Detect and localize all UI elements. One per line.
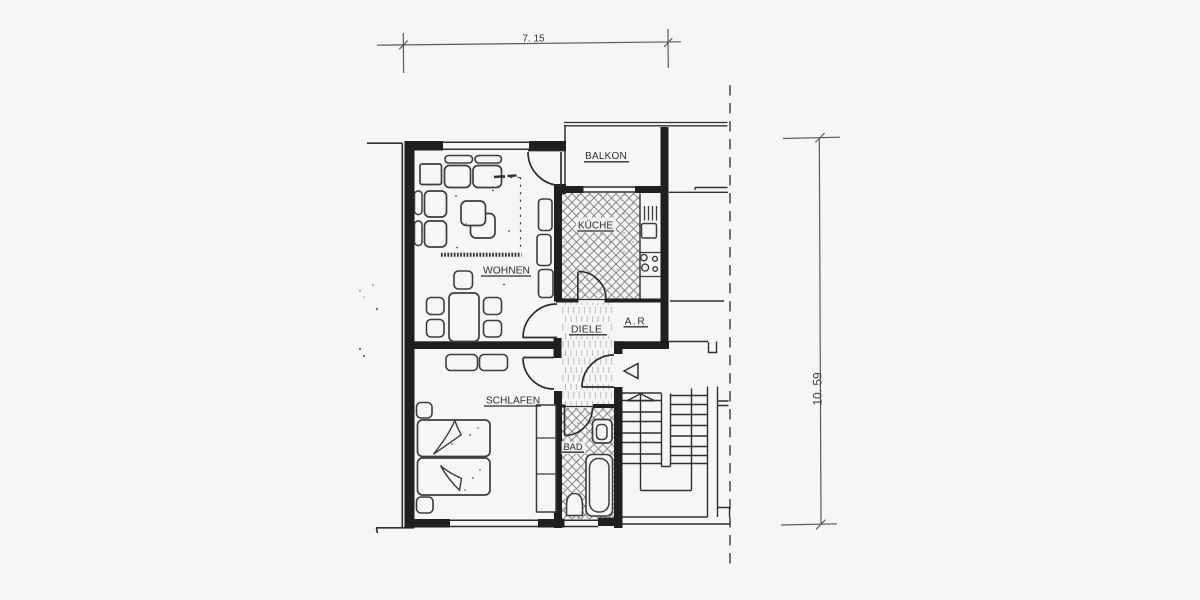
svg-text:BALKON: BALKON	[585, 151, 627, 162]
svg-text:7. 15: 7. 15	[522, 33, 545, 44]
svg-text:SCHLAFEN: SCHLAFEN	[486, 396, 540, 407]
svg-text:BAD: BAD	[563, 442, 582, 452]
svg-text:KÜCHE: KÜCHE	[578, 220, 613, 232]
svg-text:DIELE: DIELE	[571, 323, 602, 335]
svg-text:WOHNEN: WOHNEN	[483, 266, 530, 277]
svg-text:A.R: A.R	[625, 316, 646, 327]
svg-text:10. 59: 10. 59	[811, 372, 825, 406]
